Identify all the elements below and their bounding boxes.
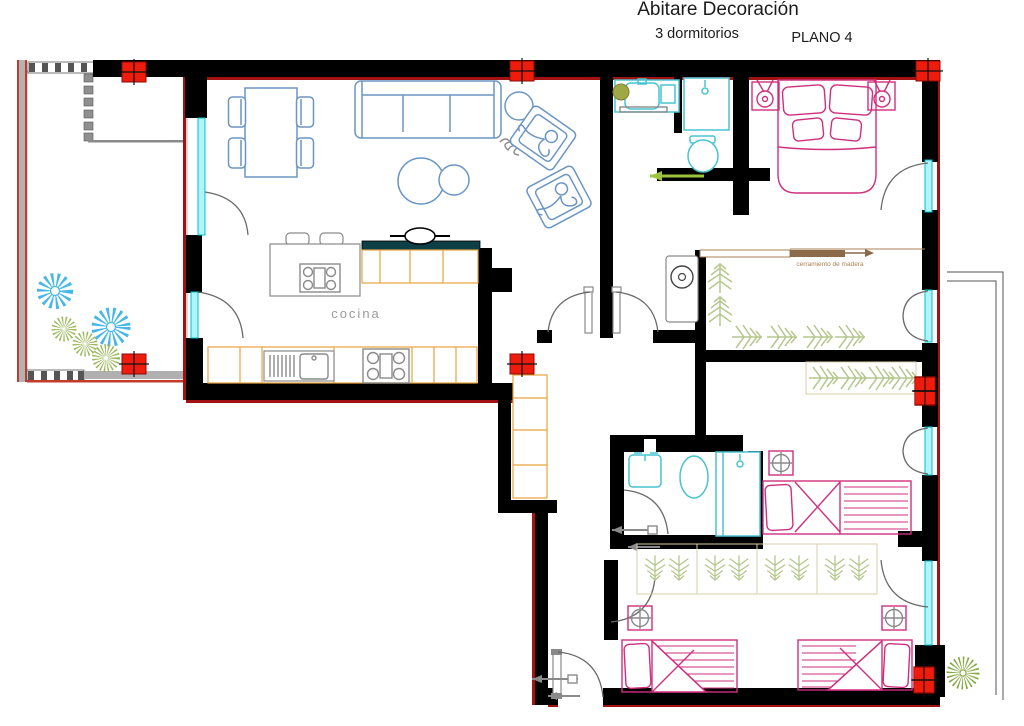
paver-column-icon (84, 74, 93, 141)
living-room (229, 81, 593, 230)
washer-icon (666, 256, 698, 322)
door-leaf (613, 291, 620, 333)
plan-number-label: PLANO 4 (791, 30, 852, 46)
column-marker-icon (913, 58, 943, 84)
page-title: Abitare Decoración (637, 0, 799, 20)
door-swing-icon (205, 192, 248, 235)
window-icon (925, 290, 932, 342)
window-icon (925, 561, 932, 645)
window-icon (925, 427, 932, 475)
door-leaf (553, 652, 561, 698)
sofa-icon (355, 81, 501, 138)
single-bed-icon (798, 640, 912, 690)
kitchen: cocina (208, 228, 480, 383)
wood-rod-arrow-icon (700, 249, 925, 257)
page-subtitle: 3 dormitorios (655, 26, 739, 42)
bath-sink-icon (613, 79, 679, 112)
hall-cabinet (513, 375, 547, 498)
porch-edge-line (88, 140, 186, 143)
balcony-outline-icon (947, 272, 1003, 700)
terrace-left-wall (19, 60, 25, 382)
nightstand-lamp-icon (752, 80, 779, 110)
clothes-hanger-icon (708, 263, 865, 349)
column-marker-icon (507, 58, 537, 84)
title-block: Abitare Decoración 3 dormitorios PLANO 4 (637, 0, 852, 46)
column-marker-icon (507, 351, 537, 377)
single-bed-icon (763, 481, 911, 534)
bedroom-3 (532, 544, 912, 700)
door-swing-icon (616, 292, 658, 332)
wardrobe-icon (637, 544, 877, 594)
column-marker-icon (119, 59, 149, 85)
bedroom-2 (763, 362, 918, 534)
door-swing-icon (624, 490, 668, 534)
coffee-table-icon (398, 158, 469, 204)
bar-stool-icon (286, 233, 309, 245)
door-swing-icon (548, 292, 590, 332)
toilet-icon (680, 456, 708, 498)
door-swing-icon (881, 163, 928, 210)
bath-cabinet (661, 85, 675, 103)
double-bed-icon (778, 80, 876, 193)
window-icon (191, 292, 198, 338)
door-swing-icon (558, 652, 603, 697)
kitchen-label: cocina (331, 306, 381, 321)
window-icon (925, 160, 932, 212)
floor-plan-page: cocina (0, 0, 1024, 726)
armchair-icon (525, 164, 593, 229)
column-marker-icon (911, 663, 937, 697)
terrace (17, 60, 190, 383)
kitchen-sink-icon (264, 351, 334, 381)
shower-icon (716, 452, 760, 536)
plant-icon (613, 84, 629, 100)
double-door-swing-icon (903, 428, 928, 474)
column-marker-icon (119, 351, 149, 377)
ceiling-light-icon (769, 451, 793, 475)
column-marker-icon (912, 373, 938, 409)
door-swing-icon (881, 560, 928, 607)
wardrobe-icon (806, 362, 918, 394)
master-bedroom (752, 80, 895, 193)
double-door-swing-icon (903, 291, 928, 341)
window-icon (198, 118, 205, 235)
bathroom-1 (613, 78, 729, 181)
dining-table-icon (229, 88, 314, 177)
ceiling-light-icon (882, 606, 906, 630)
shower-icon (684, 78, 729, 130)
single-bed-icon (622, 640, 737, 692)
toilet-icon (688, 136, 718, 172)
door-leaf (585, 291, 592, 333)
wood-partition-label: cerramiento de madera (796, 261, 864, 268)
fern-plant-icon (954, 664, 972, 682)
bath-sink-icon (629, 453, 661, 487)
ceiling-light-icon (628, 606, 652, 630)
floor-plan: cocina (0, 0, 1024, 726)
door-swing-icon (198, 292, 243, 338)
kitchen-island-icon (270, 244, 360, 296)
bar-stool-icon (320, 233, 343, 245)
